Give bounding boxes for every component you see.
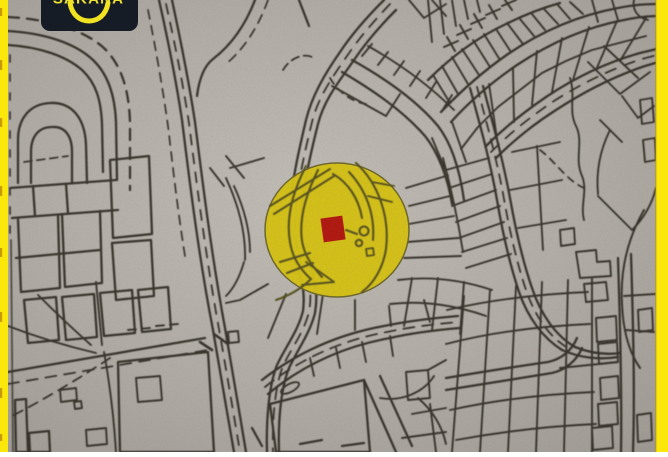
- svg-text:SAKANA: SAKANA: [53, 0, 124, 8]
